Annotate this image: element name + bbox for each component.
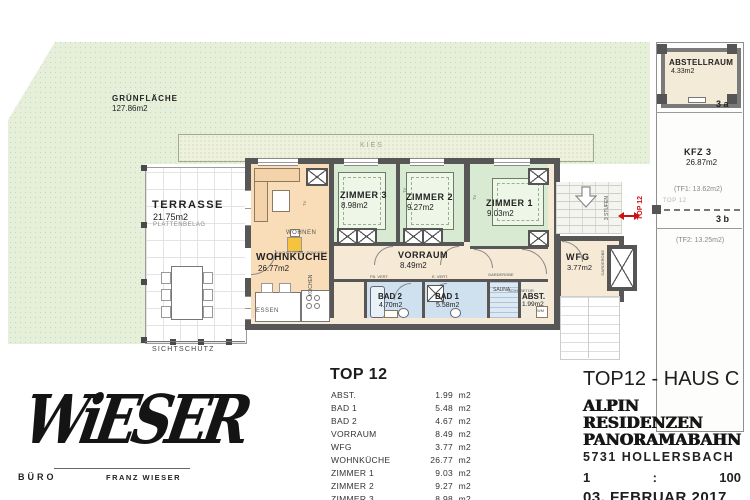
bad2-area-label: 4.70m2 bbox=[379, 302, 402, 309]
window bbox=[245, 296, 251, 320]
project-address: 5731 HOLLERSBACH bbox=[583, 450, 745, 464]
sichtschutz-label: SICHTSCHUTZ bbox=[152, 346, 215, 353]
toilet-icon bbox=[450, 308, 461, 318]
fence-post bbox=[198, 339, 204, 345]
window bbox=[494, 158, 530, 166]
area-table: ABST.1.99m2 BAD 15.48m2 BAD 24.67m2 VORR… bbox=[331, 389, 471, 500]
wieser-logo: WiESER bbox=[18, 381, 251, 460]
fence-post bbox=[170, 339, 176, 345]
staircase-centerline bbox=[588, 296, 589, 358]
row-name: VORRAUM bbox=[331, 429, 421, 439]
terrasse-label: TERRASSE bbox=[152, 199, 224, 211]
bad1-label: BAD 1 bbox=[435, 292, 459, 301]
row-unit: m2 bbox=[453, 416, 471, 426]
toilet-icon bbox=[398, 308, 409, 318]
dining-table bbox=[255, 292, 301, 322]
sheet-title: TOP12 - HAUS C bbox=[583, 368, 745, 391]
logo-rule bbox=[54, 468, 190, 469]
garderobe-label: GARDEROBE bbox=[488, 272, 514, 277]
row-unit: m2 bbox=[453, 403, 471, 413]
project-name-line2: PANORAMABAHN bbox=[583, 431, 745, 448]
bad2-label: BAD 2 bbox=[378, 292, 402, 301]
table-row: ZIMMER 38.98m2 bbox=[331, 492, 471, 500]
window bbox=[258, 158, 298, 166]
row-value: 5.48 bbox=[421, 403, 453, 413]
table-row: ZIMMER 29.27m2 bbox=[331, 479, 471, 492]
fence-post bbox=[141, 337, 147, 343]
row-unit: m2 bbox=[453, 481, 471, 491]
fence-post bbox=[141, 165, 147, 171]
abst-label: ABST. bbox=[522, 292, 545, 301]
project-name-line1: ALPIN RESIDENZEN bbox=[583, 397, 745, 431]
row-value: 3.77 bbox=[421, 442, 453, 452]
terrace-chair bbox=[161, 289, 171, 301]
row-unit: m2 bbox=[453, 468, 471, 478]
dining-chair bbox=[261, 283, 273, 293]
row-name: ZIMMER 3 bbox=[331, 494, 421, 500]
closet-icon bbox=[528, 230, 549, 247]
window bbox=[344, 158, 378, 166]
stufen-label: 3 STUFEN bbox=[604, 196, 610, 220]
table-row: WFG3.77m2 bbox=[331, 441, 471, 454]
row-name: WFG bbox=[331, 442, 421, 452]
table-row: ZIMMER 19.03m2 bbox=[331, 466, 471, 479]
logo-buero-label: BÜRO bbox=[18, 472, 57, 482]
essen-label: ESSEN bbox=[256, 308, 279, 314]
vorraum-area-label: 8.49m2 bbox=[400, 261, 427, 270]
closet-icon bbox=[356, 228, 377, 245]
kfz-label: KFZ 3 bbox=[684, 147, 712, 157]
garderobe-label: GARDEROBE bbox=[600, 250, 605, 276]
top12-gray-label: TOP 12 bbox=[663, 198, 686, 204]
table-row: ABST.1.99m2 bbox=[331, 389, 471, 402]
kfz-area-label: 26.87m2 bbox=[686, 158, 717, 167]
kochen-label: KOCHEN bbox=[308, 275, 314, 296]
coffee-table bbox=[272, 190, 290, 212]
e-vert-label: E. VERT. bbox=[432, 274, 448, 279]
scale-numerator: 1 bbox=[583, 470, 590, 485]
zimmer3-area-label: 8.98m2 bbox=[341, 201, 368, 210]
cooktop-burner-icon bbox=[306, 303, 312, 309]
table-row: WOHNKÜCHE26.77m2 bbox=[331, 453, 471, 466]
closet-icon bbox=[422, 228, 443, 245]
scale-denominator: 100 bbox=[719, 470, 741, 485]
divider-line bbox=[656, 228, 742, 229]
terrace-chair bbox=[161, 306, 171, 318]
fence-post bbox=[141, 279, 147, 285]
boundary-marker bbox=[652, 205, 661, 214]
tf1-label: (TF1: 13.62m2) bbox=[674, 186, 722, 193]
terrasse-note-label: PLATTENBELAG bbox=[153, 222, 206, 228]
tv-label: TV bbox=[472, 195, 477, 200]
row-value: 4.67 bbox=[421, 416, 453, 426]
wohnen-label: WOHNEN bbox=[286, 230, 316, 236]
zimmer2-area-label: 9.27m2 bbox=[407, 203, 434, 212]
divider-line bbox=[656, 112, 742, 113]
closet-icon bbox=[528, 168, 549, 185]
row-value: 1.99 bbox=[421, 390, 453, 400]
section-3a-label: 3 a bbox=[716, 99, 729, 109]
sauna-label: SAUNA bbox=[493, 287, 510, 293]
row-value: 9.27 bbox=[421, 481, 453, 491]
kies-label: KIES bbox=[360, 142, 384, 149]
cooktop-burner-icon bbox=[314, 295, 320, 301]
garderobe-closet-icon bbox=[607, 245, 637, 291]
tv-label: TV bbox=[302, 201, 307, 206]
zimmer1-label: ZIMMER 1 bbox=[486, 198, 533, 208]
down-arrow-icon bbox=[574, 186, 598, 208]
window bbox=[410, 158, 444, 166]
row-value: 8.49 bbox=[421, 429, 453, 439]
zimmer1-area-label: 9.03m2 bbox=[487, 209, 514, 218]
section-3b-label: 3 b bbox=[716, 214, 729, 224]
gruenflaeche-label: GRÜNFLÄCHE bbox=[112, 94, 178, 103]
shed-door bbox=[688, 97, 706, 103]
row-unit: m2 bbox=[453, 494, 471, 500]
terrace-chair bbox=[203, 272, 213, 284]
terrace-table bbox=[171, 266, 203, 320]
abst-area-label: 1.99m2 bbox=[522, 301, 544, 308]
row-unit: m2 bbox=[453, 429, 471, 439]
table-row: BAD 15.48m2 bbox=[331, 402, 471, 415]
corner-post bbox=[657, 94, 667, 104]
top12-entry-label: TOP 12 bbox=[637, 196, 644, 220]
closet-icon bbox=[403, 228, 424, 245]
table-row: BAD 24.67m2 bbox=[331, 415, 471, 428]
sichtschutz-line bbox=[145, 341, 245, 342]
row-value: 26.77 bbox=[421, 455, 453, 465]
row-value: 9.03 bbox=[421, 468, 453, 478]
row-name: ZIMMER 2 bbox=[331, 481, 421, 491]
terrace-chair bbox=[203, 289, 213, 301]
row-name: WOHNKÜCHE bbox=[331, 455, 421, 465]
dashed-divider bbox=[664, 209, 740, 211]
tv-label: TV bbox=[402, 188, 407, 193]
sofa bbox=[254, 168, 300, 182]
corner-post bbox=[727, 44, 737, 54]
gruenflaeche-area-label: 127.86m2 bbox=[112, 104, 148, 113]
row-unit: m2 bbox=[453, 455, 471, 465]
fb-vert-label: FB. VERT. bbox=[370, 274, 389, 279]
scale-colon: : bbox=[653, 470, 657, 485]
table-title: TOP 12 bbox=[330, 366, 388, 384]
wfg-area-label: 3.77m2 bbox=[567, 263, 592, 272]
row-unit: m2 bbox=[453, 390, 471, 400]
abstellraum-area-label: 4.33m2 bbox=[671, 68, 694, 75]
row-name: BAD 2 bbox=[331, 416, 421, 426]
window bbox=[245, 190, 251, 226]
wm-label: WM bbox=[537, 308, 544, 313]
wohnkueche-area-label: 26.77m2 bbox=[258, 264, 289, 273]
row-name: ZIMMER 1 bbox=[331, 468, 421, 478]
scale-row: 1 : 100 bbox=[583, 470, 741, 485]
row-name: ABST. bbox=[331, 390, 421, 400]
fence-post bbox=[141, 222, 147, 228]
zimmer3-label: ZIMMER 3 bbox=[340, 190, 387, 200]
bad1-area-label: 5.58m2 bbox=[436, 302, 459, 309]
fence-post bbox=[226, 339, 232, 345]
terrace-chair bbox=[203, 306, 213, 318]
dining-chair bbox=[279, 283, 291, 293]
abstellraum-label: ABSTELLRAUM bbox=[669, 58, 733, 67]
staircase bbox=[560, 296, 620, 360]
title-block: TOP12 - HAUS C ALPIN RESIDENZEN PANORAMA… bbox=[583, 368, 745, 500]
terrasse-area-label: 21.75m2 bbox=[153, 212, 188, 222]
vorraum-label: VORRAUM bbox=[398, 250, 448, 260]
sheet-date: 03. FEBRUAR 2017 bbox=[583, 489, 745, 500]
row-unit: m2 bbox=[453, 442, 471, 452]
terrace-chair bbox=[161, 272, 171, 284]
row-name: BAD 1 bbox=[331, 403, 421, 413]
logo-name-label: FRANZ WIESER bbox=[106, 473, 181, 482]
tf2-label: (TF2: 13.25m2) bbox=[676, 237, 724, 244]
logo-block: WiESER BÜRO FRANZ WIESER bbox=[14, 388, 194, 493]
floor-plan-sheet: GRÜNFLÄCHE 127.86m2 KIES TERRASSE 21.75m… bbox=[0, 0, 750, 500]
zimmer2-label: ZIMMER 2 bbox=[406, 192, 453, 202]
closet-icon bbox=[337, 228, 358, 245]
bath-sink bbox=[384, 310, 398, 318]
table-row: VORRAUM8.49m2 bbox=[331, 428, 471, 441]
row-value: 8.98 bbox=[421, 494, 453, 500]
kachelofen-label: KACHELOFEN / SONDERW. bbox=[276, 250, 328, 255]
cabinet-icon bbox=[306, 168, 328, 186]
cooktop-burner-icon bbox=[314, 303, 320, 309]
corner-post bbox=[657, 44, 667, 54]
